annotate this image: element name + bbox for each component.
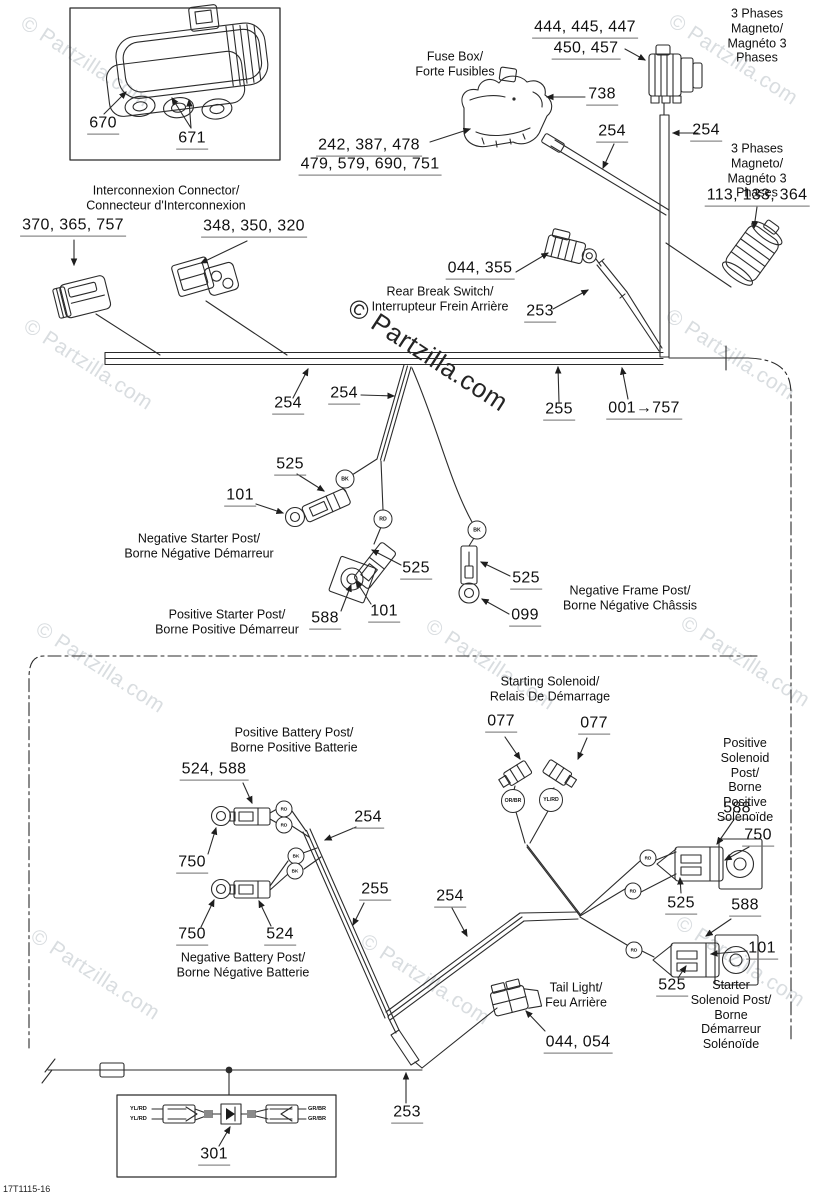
ref-242-387-478: 242, 387, 478 bbox=[316, 138, 422, 157]
interconnect-connector-name: Interconnexion Connector/ Connecteur d'I… bbox=[86, 183, 245, 213]
ref-099: 099 bbox=[509, 608, 541, 627]
starter-solenoid-post-name: Starter Solenoid Post/ Borne Démarreur S… bbox=[687, 978, 776, 1052]
positive-battery-post-name: Positive Battery Post/ Borne Positive Ba… bbox=[230, 725, 357, 755]
wire-label-gr-br: GR/BR bbox=[308, 1116, 326, 1122]
wire-tag-yl-rd: YL/RD bbox=[539, 788, 563, 812]
magneto-top-name: 3 Phases Magneto/ Magnéto 3 Phases bbox=[726, 7, 789, 66]
magneto-right-name: 3 Phases Magneto/ Magnéto 3 Phases bbox=[726, 142, 789, 201]
fuse-box-name: Fuse Box/ Forte Fusibles bbox=[415, 49, 494, 79]
ref-077-right: 077 bbox=[578, 716, 610, 735]
wire-tag-rd: RD bbox=[276, 801, 293, 818]
ref-254-mid: 254 bbox=[434, 889, 466, 908]
ref-525-pos-sol: 525 bbox=[665, 896, 697, 915]
ref-525-frame: 525 bbox=[510, 571, 542, 590]
rear-brake-switch-name: Rear Break Switch/ Interrupteur Frein Ar… bbox=[372, 284, 509, 314]
wire-label-yl-rd: YL/RD bbox=[130, 1116, 147, 1122]
ref-253-tail: 253 bbox=[391, 1105, 423, 1124]
ref-255-lower: 255 bbox=[359, 882, 391, 901]
ref-525-pos-starter: 525 bbox=[400, 561, 432, 580]
negative-frame-post-name: Negative Frame Post/ Borne Négative Châs… bbox=[563, 583, 697, 613]
ref-588-pos-starter: 588 bbox=[309, 611, 341, 630]
ref-255-main-bar: 255 bbox=[543, 402, 575, 421]
wire-tag-rd: RD bbox=[276, 817, 293, 834]
ref-738: 738 bbox=[586, 87, 618, 106]
ref-348-350-320: 348, 350, 320 bbox=[201, 219, 307, 238]
wire-tag-rd: RD bbox=[374, 510, 393, 529]
ref-670: 670 bbox=[87, 116, 119, 135]
ref-588-start-sol: 588 bbox=[729, 898, 761, 917]
ref-254-fuse-harness: 254 bbox=[596, 124, 628, 143]
ref-750-neg-batt: 750 bbox=[176, 927, 208, 946]
wire-tag-bk: BK bbox=[287, 863, 304, 880]
ref-450-457: 450, 457 bbox=[552, 41, 621, 60]
ref-301: 301 bbox=[198, 1147, 230, 1166]
ref-750-pos-batt: 750 bbox=[176, 855, 208, 874]
wire-tag-rd: RD bbox=[640, 850, 657, 867]
wire-tag-bk: BK bbox=[468, 521, 487, 540]
wire-tag-bk: BK bbox=[336, 470, 355, 489]
negative-starter-post-name: Negative Starter Post/ Borne Négative Dé… bbox=[124, 531, 273, 561]
ref-044-355: 044, 355 bbox=[446, 261, 515, 280]
ref-254-magneto-harness: 254 bbox=[690, 123, 722, 142]
ref-254-lower: 254 bbox=[352, 810, 384, 829]
ref-370-365-757: 370, 365, 757 bbox=[20, 218, 126, 237]
wire-tag-rd: RD bbox=[626, 942, 643, 959]
wire-label-yl-rd: YL/RD bbox=[130, 1106, 147, 1112]
ref-444-445-447: 444, 445, 447 bbox=[532, 20, 638, 39]
ref-077-left: 077 bbox=[485, 714, 517, 733]
ref-254-branch: 254 bbox=[328, 386, 360, 405]
wire-label-gr-br: GR/BR bbox=[308, 1106, 326, 1112]
ref-750-pos-sol: 750 bbox=[742, 828, 774, 847]
ref-254-main-bar: 254 bbox=[272, 396, 304, 415]
ref-525-start-sol: 525 bbox=[656, 978, 688, 997]
positive-starter-post-name: Positive Starter Post/ Borne Positive Dé… bbox=[155, 607, 299, 637]
ref-671: 671 bbox=[176, 131, 208, 150]
sheet-code: 17T1115-16 bbox=[3, 1184, 50, 1194]
ref-101-pos-starter: 101 bbox=[368, 604, 400, 623]
ref-525-neg-starter: 525 bbox=[274, 457, 306, 476]
ref-001-to-757: 001→757 bbox=[606, 401, 682, 420]
ref-101-neg-starter: 101 bbox=[224, 488, 256, 507]
ref-101-start-sol: 101 bbox=[746, 941, 778, 960]
ref-524-588: 524, 588 bbox=[180, 762, 249, 781]
wiring-harness-diagram-page: © Partzilla.com © Partzilla.com © Partzi… bbox=[0, 0, 820, 1200]
ref-253-brake: 253 bbox=[524, 304, 556, 323]
ref-044-054: 044, 054 bbox=[544, 1035, 613, 1054]
starting-solenoid-name: Starting Solenoid/ Relais De Démarrage bbox=[490, 674, 610, 704]
wire-tag-or-br: OR/BR bbox=[501, 789, 525, 813]
positive-solenoid-post-name: Positive Solenoid Post/ Borne Positive S… bbox=[708, 736, 783, 825]
negative-battery-post-name: Negative Battery Post/ Borne Négative Ba… bbox=[177, 950, 310, 980]
wire-tag-rd: RD bbox=[625, 883, 642, 900]
ref-479-579-690-751: 479, 579, 690, 751 bbox=[299, 157, 442, 176]
tail-light-name: Tail Light/ Feu Arrière bbox=[545, 980, 607, 1010]
ref-524-neg-batt: 524 bbox=[264, 927, 296, 946]
